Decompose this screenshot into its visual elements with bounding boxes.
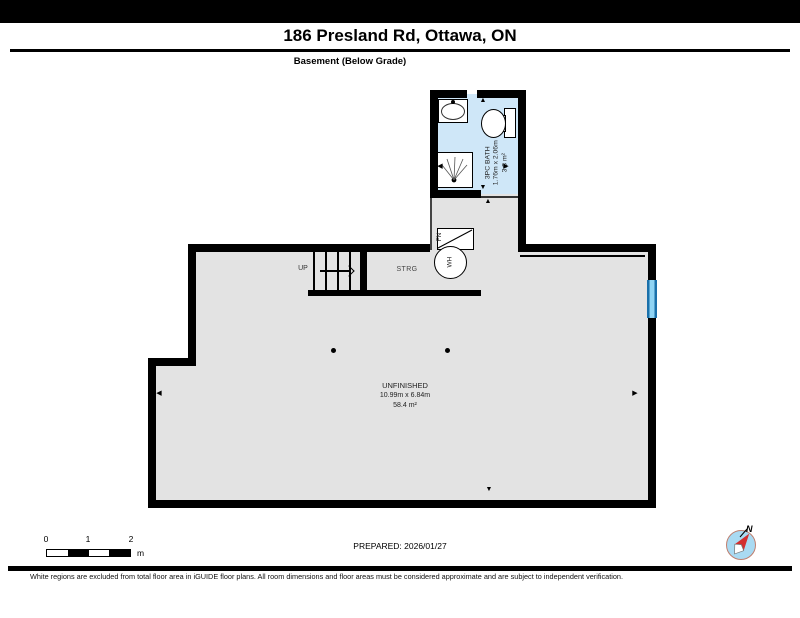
scale-bar [46, 549, 131, 557]
unfinished-label: UNFINISHED 10.99m x 6.84m 58.4 m² [345, 381, 465, 410]
dimension-arrow-up-icon: ▲ [484, 198, 492, 205]
storage-label: STRG [377, 266, 437, 275]
wall [518, 90, 526, 252]
top-border-bar [0, 0, 800, 23]
dimension-arrow-right-icon: ▶ [502, 163, 510, 170]
water-heater-label: WH [446, 252, 454, 273]
unfinished-floor-extension [152, 362, 196, 502]
scale-segment [47, 550, 68, 556]
prepared-date: PREPARED: 2026/01/27 [300, 541, 500, 551]
scale-unit-label: m [137, 548, 144, 558]
dimension-arrow-left-icon: ◀ [436, 163, 444, 170]
page-title: 186 Presland Rd, Ottawa, ON [0, 26, 800, 46]
faucet-icon [451, 100, 455, 104]
dimension-arrow-down-icon: ▼ [485, 486, 493, 493]
wall [148, 358, 156, 508]
floorplan-page: 186 Presland Rd, Ottawa, ON Basement (Be… [0, 0, 800, 618]
footer-divider [8, 566, 792, 571]
dimension-arrow-right-icon: ▶ [631, 390, 639, 397]
unfinished-dimensions: 10.99m x 6.84m [345, 391, 465, 400]
sink-basin-icon [441, 103, 465, 120]
scale-segment [89, 550, 110, 556]
scale-tick-label: 0 [41, 534, 51, 544]
scale-tick-label: 2 [126, 534, 136, 544]
scale-tick-label: 1 [83, 534, 93, 544]
wall [188, 244, 430, 252]
dimension-arrow-down-icon: ▼ [479, 184, 487, 191]
unfinished-floor [192, 250, 652, 502]
furnace-label: FN [436, 228, 444, 246]
wall [360, 244, 367, 292]
wall [148, 500, 656, 508]
unfinished-name: UNFINISHED [345, 381, 465, 391]
dimension-arrow-up-icon: ▲ [479, 97, 487, 104]
wall [518, 244, 656, 252]
title-divider [10, 49, 790, 52]
floor-edge-line [520, 255, 645, 257]
window [647, 280, 657, 318]
scale-segment [109, 550, 130, 556]
stairs-up-label: UP [288, 265, 318, 274]
wall [308, 290, 481, 296]
wall [188, 244, 196, 366]
support-column-dot [445, 348, 450, 353]
support-column-dot [331, 348, 336, 353]
unfinished-area: 58.4 m² [345, 401, 465, 410]
scale-segment [68, 550, 89, 556]
shower-icon [437, 152, 473, 188]
disclaimer-text: White regions are excluded from total fl… [30, 572, 770, 581]
wall [430, 190, 481, 198]
floor-label: Basement (Below Grade) [250, 56, 450, 67]
bathroom-dimensions: 1.76m x 2.06m [493, 128, 501, 198]
compass-icon: N [716, 518, 766, 568]
dimension-arrow-left-icon: ◀ [155, 390, 163, 397]
corridor-edge-line [430, 192, 432, 252]
north-label: N [746, 524, 753, 534]
